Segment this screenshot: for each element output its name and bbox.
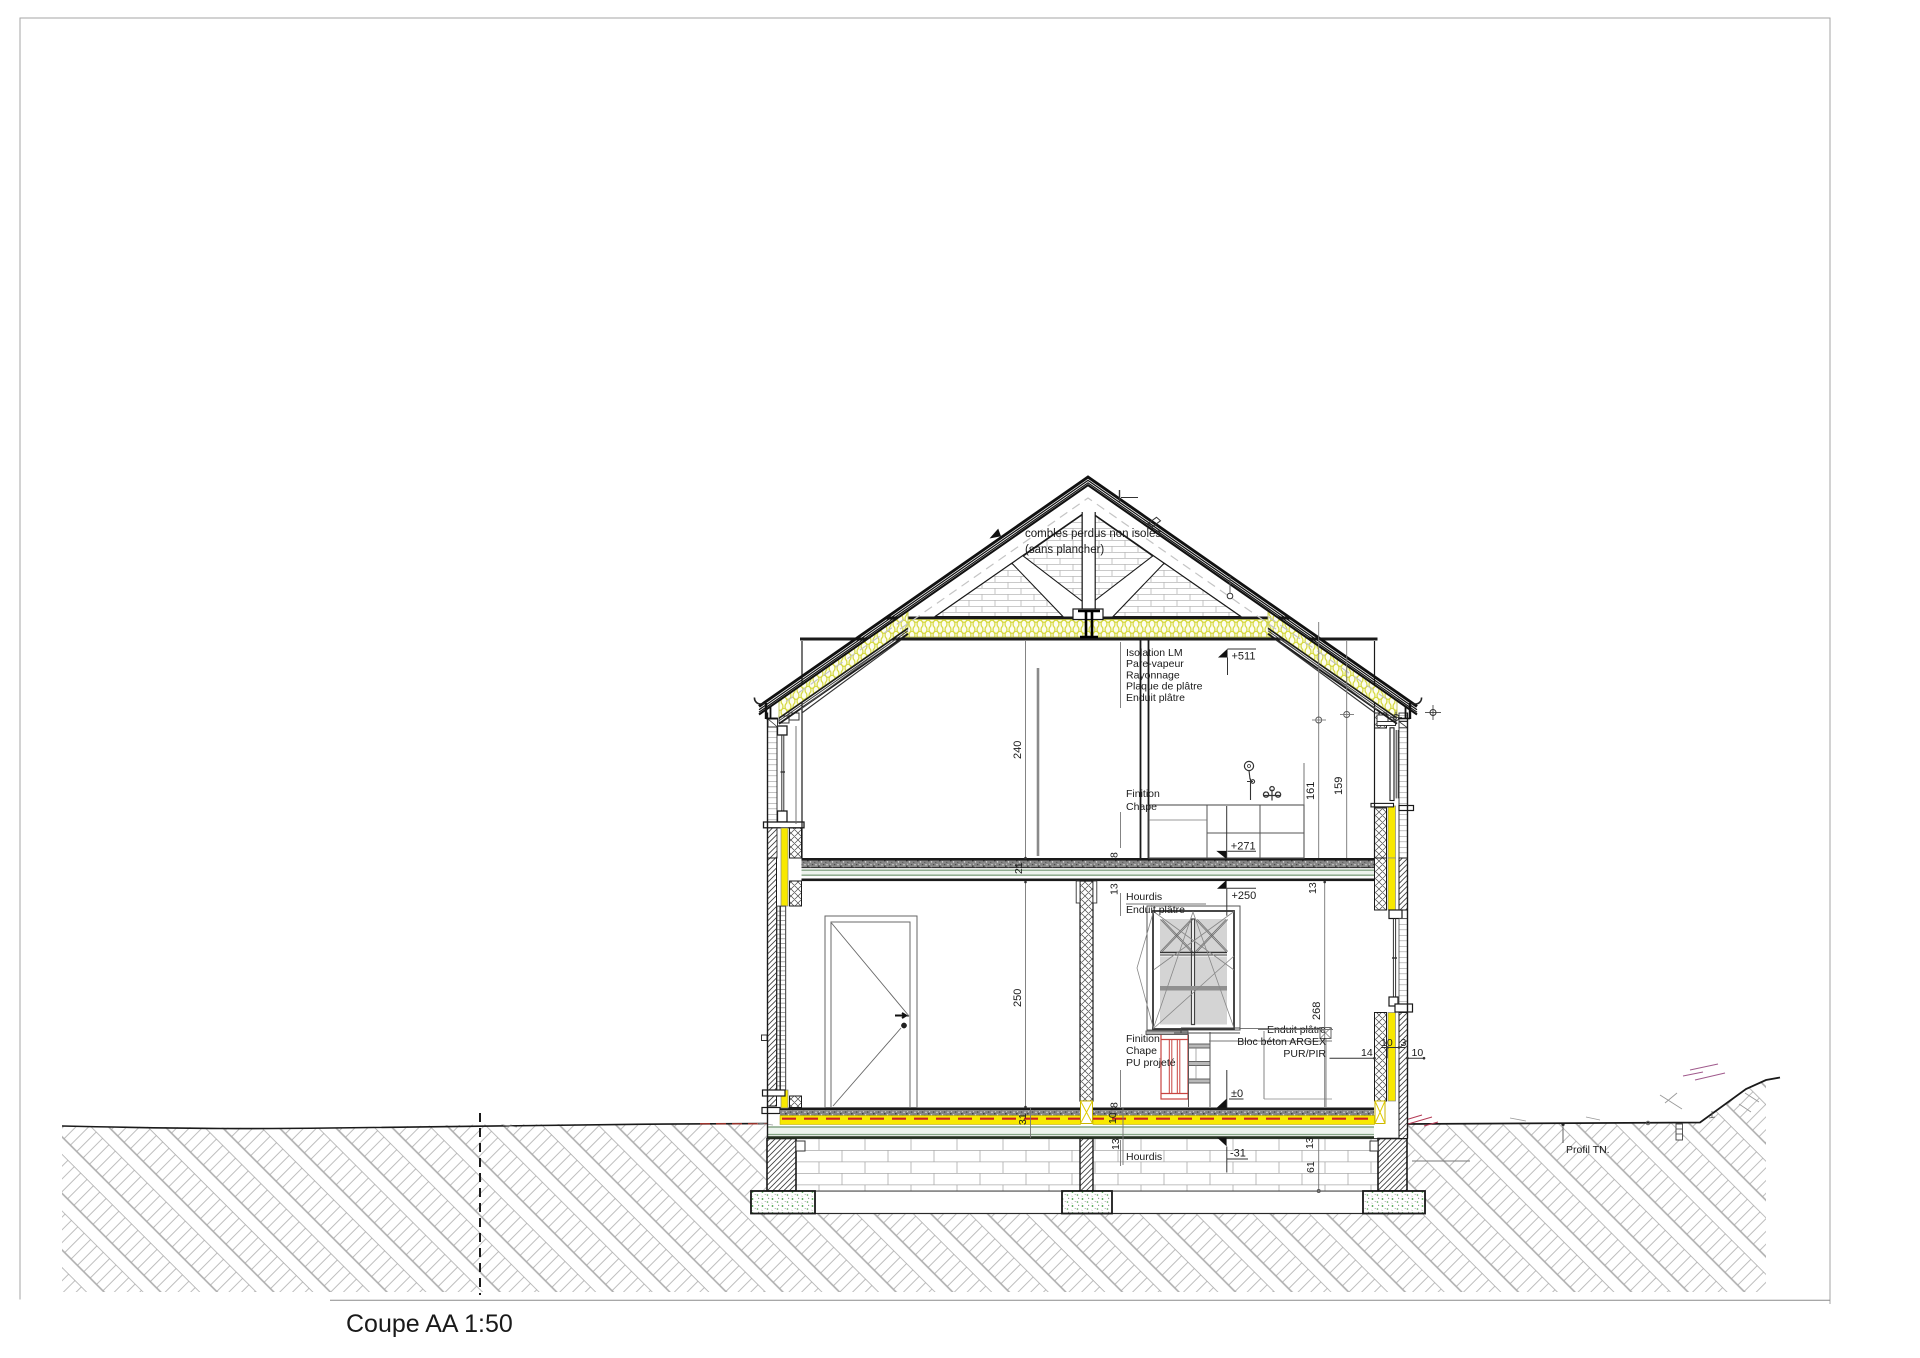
svg-text:PU projeté: PU projeté [1126, 1057, 1176, 1069]
svg-text:268: 268 [1311, 1002, 1323, 1020]
svg-text:Finition: Finition [1126, 1033, 1160, 1045]
svg-text:+511: +511 [1232, 651, 1256, 663]
svg-text:61: 61 [1305, 1161, 1317, 1173]
svg-text:13: 13 [1307, 882, 1319, 894]
svg-text:Enduit plâtre: Enduit plâtre [1126, 904, 1185, 916]
svg-text:(sans plancher): (sans plancher) [1025, 544, 1104, 556]
svg-text:combles perdus non isolés: combles perdus non isolés [1025, 528, 1161, 540]
svg-text:±0: ±0 [1231, 1088, 1243, 1100]
svg-text:Rayonnage: Rayonnage [1126, 669, 1180, 681]
svg-text:161: 161 [1305, 782, 1317, 800]
svg-text:PUR/PIR: PUR/PIR [1283, 1048, 1326, 1060]
svg-text:14: 14 [1361, 1047, 1373, 1059]
svg-text:Enduit plâtre: Enduit plâtre [1126, 692, 1185, 704]
svg-text:+271: +271 [1231, 841, 1256, 853]
svg-text:Profil TN.: Profil TN. [1566, 1144, 1610, 1156]
svg-text:8: 8 [1109, 1102, 1121, 1108]
svg-text:Bloc béton ARGEX: Bloc béton ARGEX [1237, 1036, 1326, 1048]
svg-text:31: 31 [1017, 1113, 1029, 1125]
svg-text:250: 250 [1012, 989, 1024, 1007]
svg-text:8: 8 [1109, 852, 1121, 858]
svg-text:Pare-vapeur: Pare-vapeur [1126, 658, 1184, 670]
svg-text:Chape: Chape [1126, 1045, 1157, 1057]
svg-text:Hourdis: Hourdis [1126, 891, 1162, 903]
svg-text:Plaque de plâtre: Plaque de plâtre [1126, 681, 1203, 693]
svg-text:Finition: Finition [1126, 788, 1160, 800]
svg-text:159: 159 [1333, 777, 1345, 795]
svg-text:13: 13 [1304, 1137, 1316, 1149]
svg-text:+250: +250 [1232, 890, 1257, 902]
svg-text:Isolation LM: Isolation LM [1126, 647, 1183, 659]
svg-text:10: 10 [1412, 1047, 1424, 1059]
svg-text:21: 21 [1013, 862, 1025, 874]
svg-text:Coupe AA 1:50: Coupe AA 1:50 [346, 1310, 513, 1338]
svg-text:Chape: Chape [1126, 801, 1157, 813]
svg-text:-31: -31 [1230, 1148, 1246, 1160]
svg-text:13: 13 [1109, 883, 1121, 895]
svg-text:10: 10 [1107, 1112, 1119, 1124]
svg-text:Enduit plâtre: Enduit plâtre [1267, 1024, 1326, 1036]
svg-text:Hourdis: Hourdis [1126, 1151, 1162, 1163]
svg-text:240: 240 [1012, 741, 1024, 759]
